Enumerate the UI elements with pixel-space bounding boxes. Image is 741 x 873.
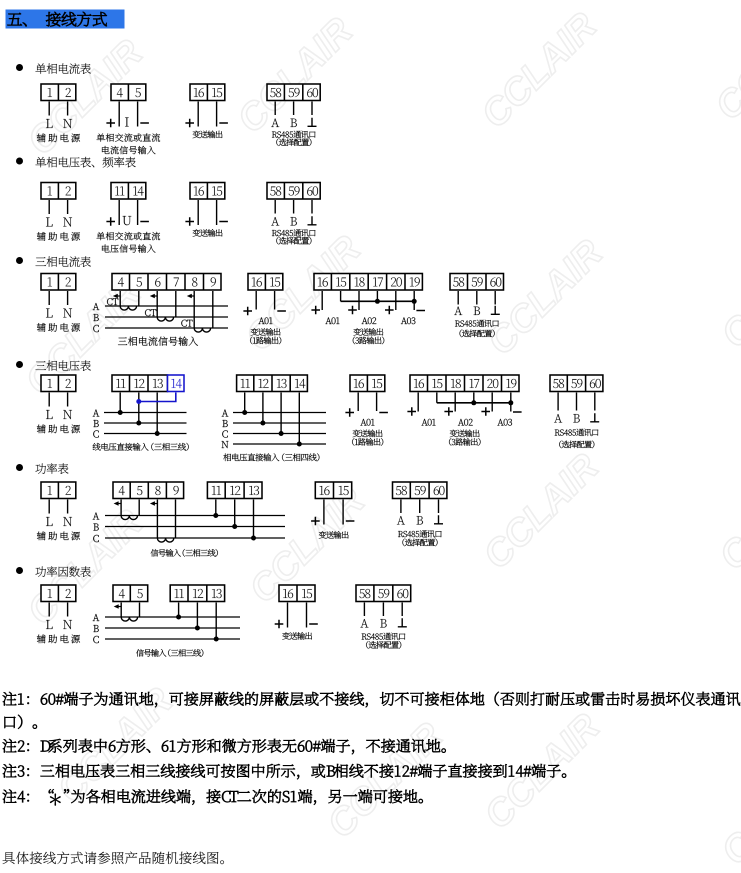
- svg-text:CCLAIR: CCLAIR: [320, 715, 452, 847]
- svg-text:CCLAIR: CCLAIR: [476, 446, 608, 578]
- svg-text:CCLAIR: CCLAIR: [712, 447, 741, 579]
- svg-text:CCLAIR: CCLAIR: [714, 742, 741, 873]
- svg-text:CCLAIR: CCLAIR: [708, 0, 741, 128]
- svg-text:CCLAIR: CCLAIR: [474, 5, 606, 137]
- svg-text:CCLAIR: CCLAIR: [714, 225, 741, 357]
- svg-text:CCLAIR: CCLAIR: [480, 232, 612, 364]
- svg-text:CCLAIR: CCLAIR: [238, 228, 370, 360]
